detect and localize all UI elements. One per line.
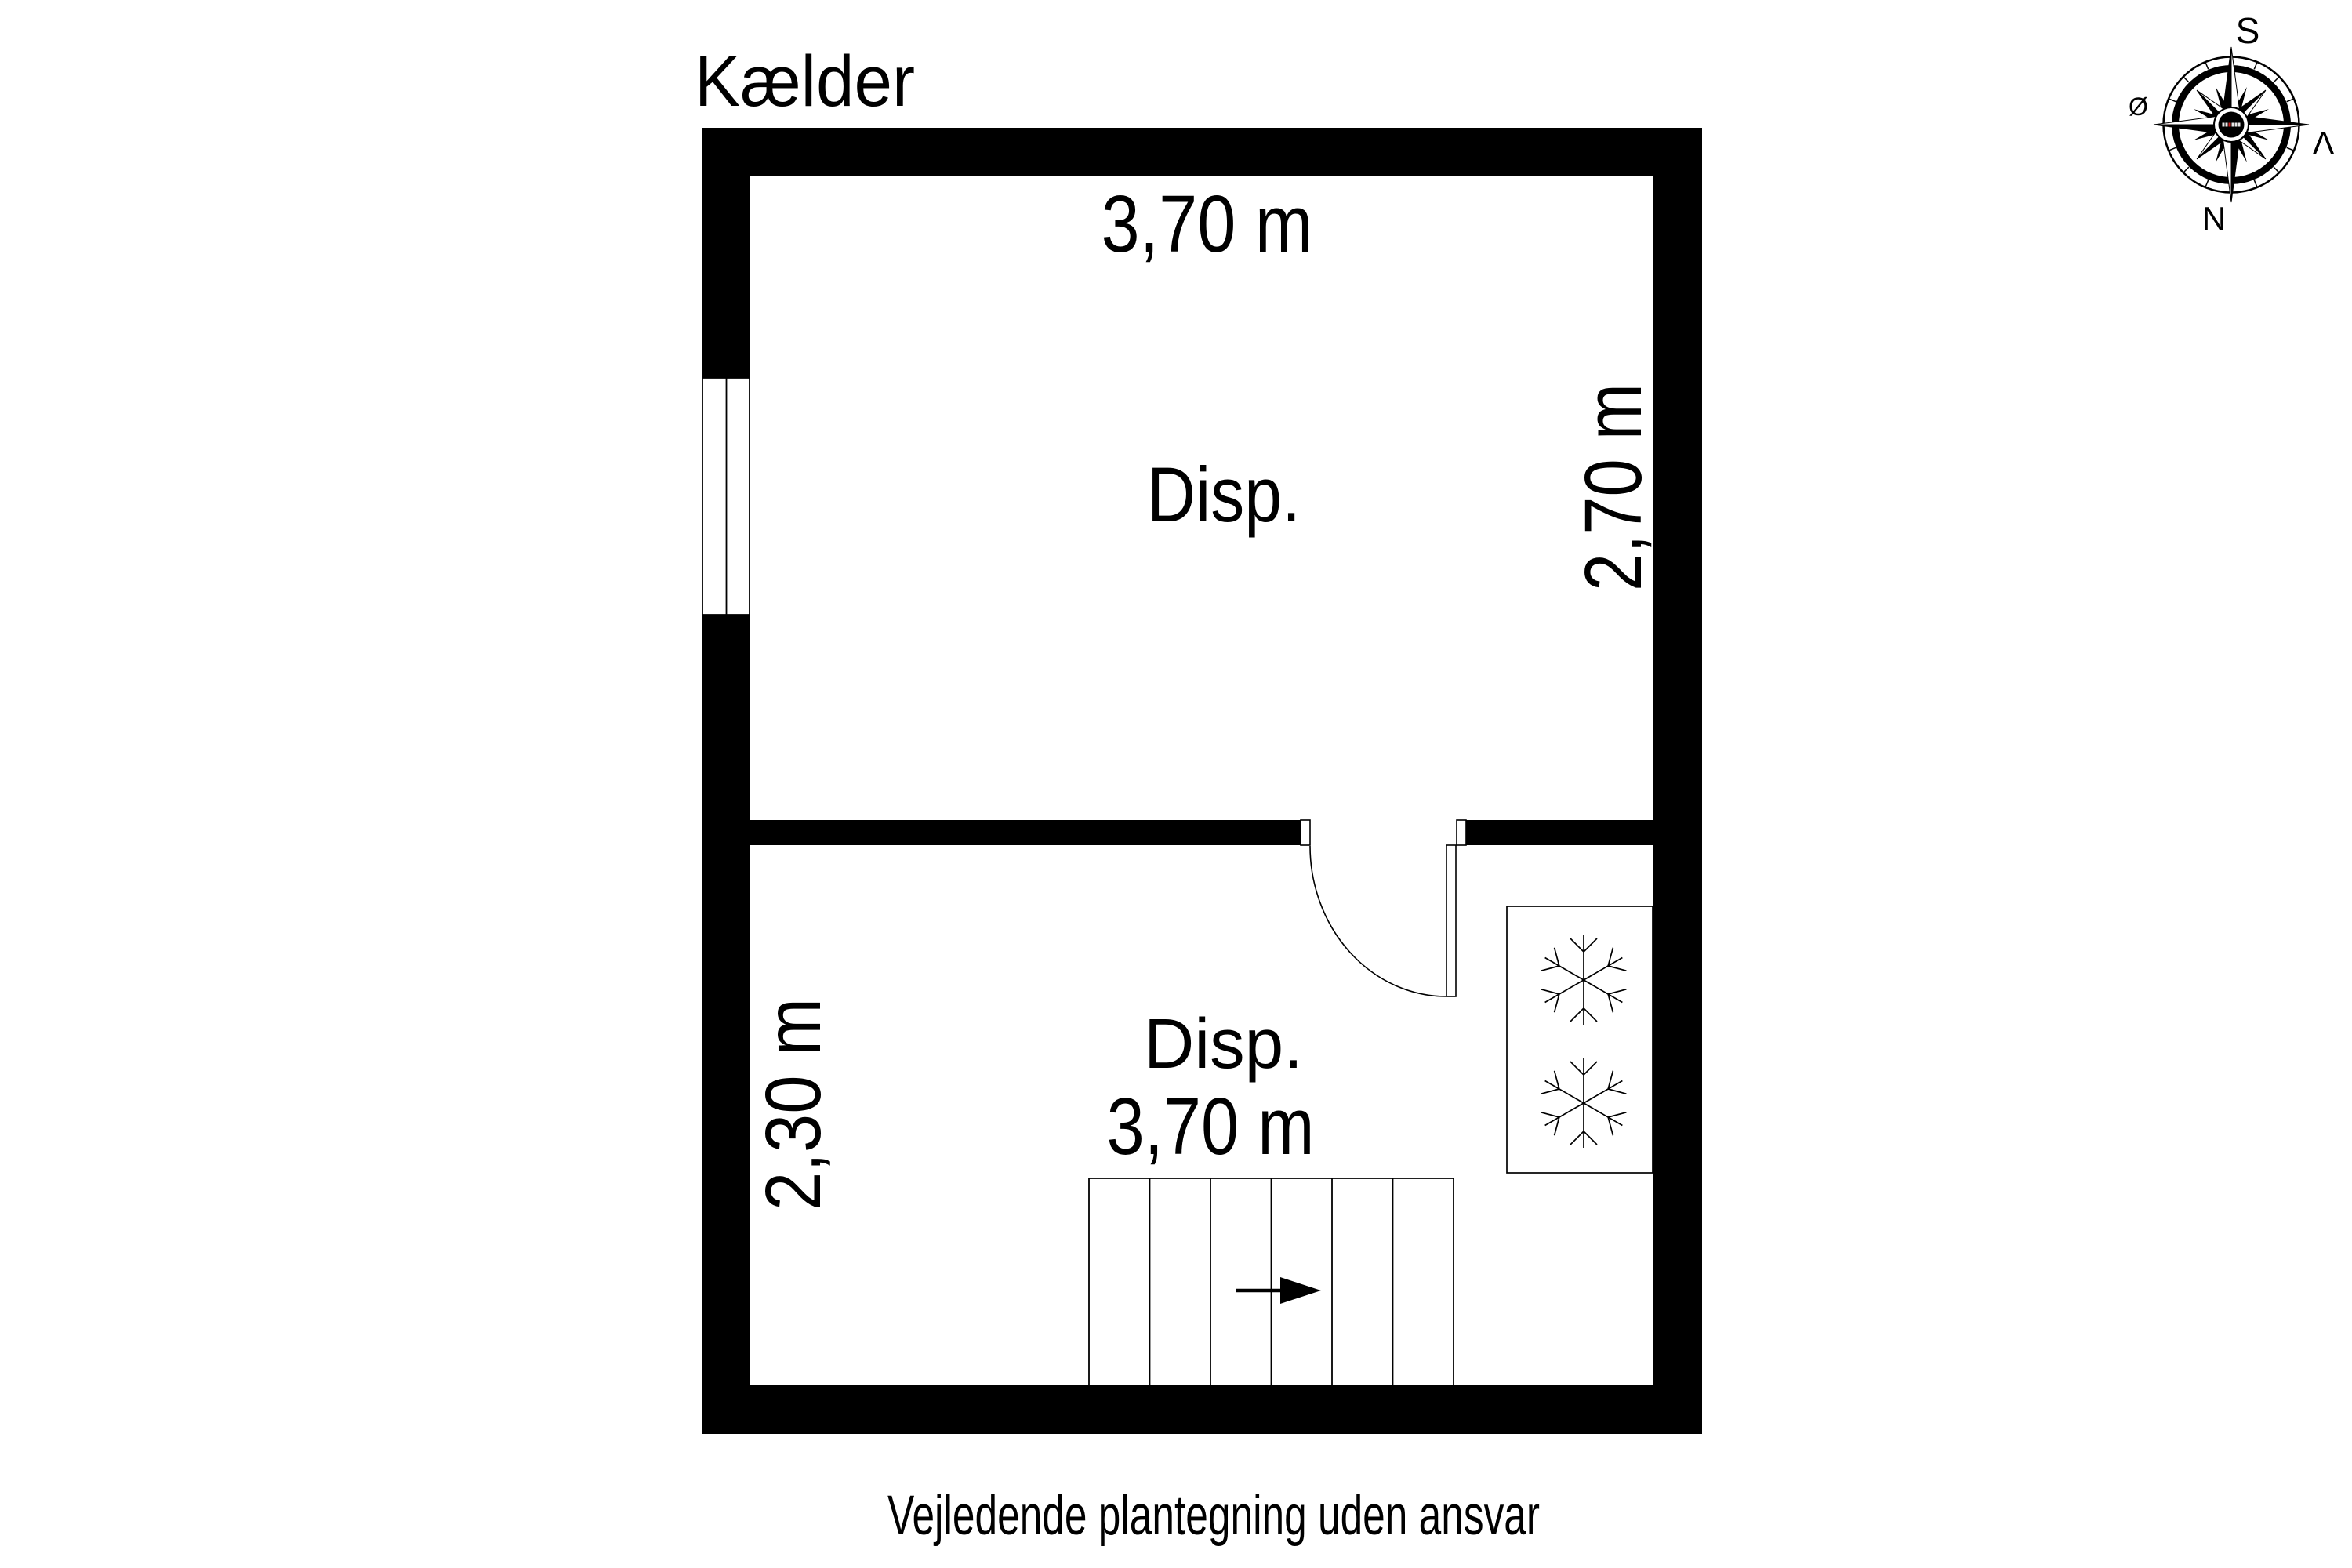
- svg-text:Disp.: Disp.: [1144, 1005, 1303, 1083]
- svg-text:Ø: Ø: [2129, 93, 2148, 121]
- svg-text:Kælder: Kælder: [695, 42, 915, 122]
- svg-text:3,70 m: 3,70 m: [1107, 1081, 1315, 1171]
- svg-text:S: S: [2236, 10, 2260, 51]
- svg-text:Vejledende plantegning uden an: Vejledende plantegning uden ansvar: [887, 1485, 1540, 1547]
- svg-text:V: V: [2312, 125, 2334, 161]
- svg-text:N: N: [2202, 200, 2226, 237]
- svg-text:2,70 m: 2,70 m: [1568, 383, 1658, 591]
- svg-text:2,30 m: 2,30 m: [750, 998, 837, 1210]
- svg-text:3,70 m: 3,70 m: [1102, 179, 1313, 269]
- svg-text:Disp.: Disp.: [1147, 451, 1301, 538]
